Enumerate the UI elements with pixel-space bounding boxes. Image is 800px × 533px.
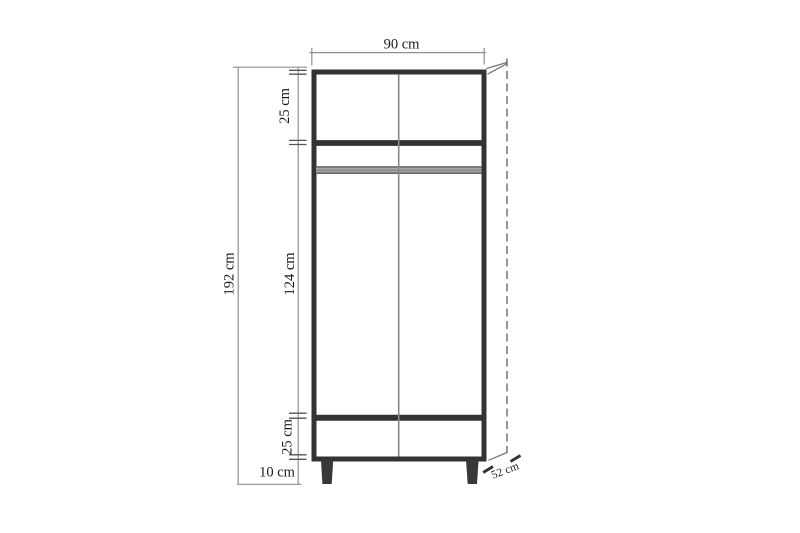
svg-text:124 cm: 124 cm [282,252,298,296]
svg-text:192 cm: 192 cm [222,252,238,296]
svg-text:25 cm: 25 cm [280,418,296,455]
svg-text:90 cm: 90 cm [384,37,421,53]
svg-text:10 cm: 10 cm [259,465,296,481]
svg-text:25 cm: 25 cm [277,87,293,124]
